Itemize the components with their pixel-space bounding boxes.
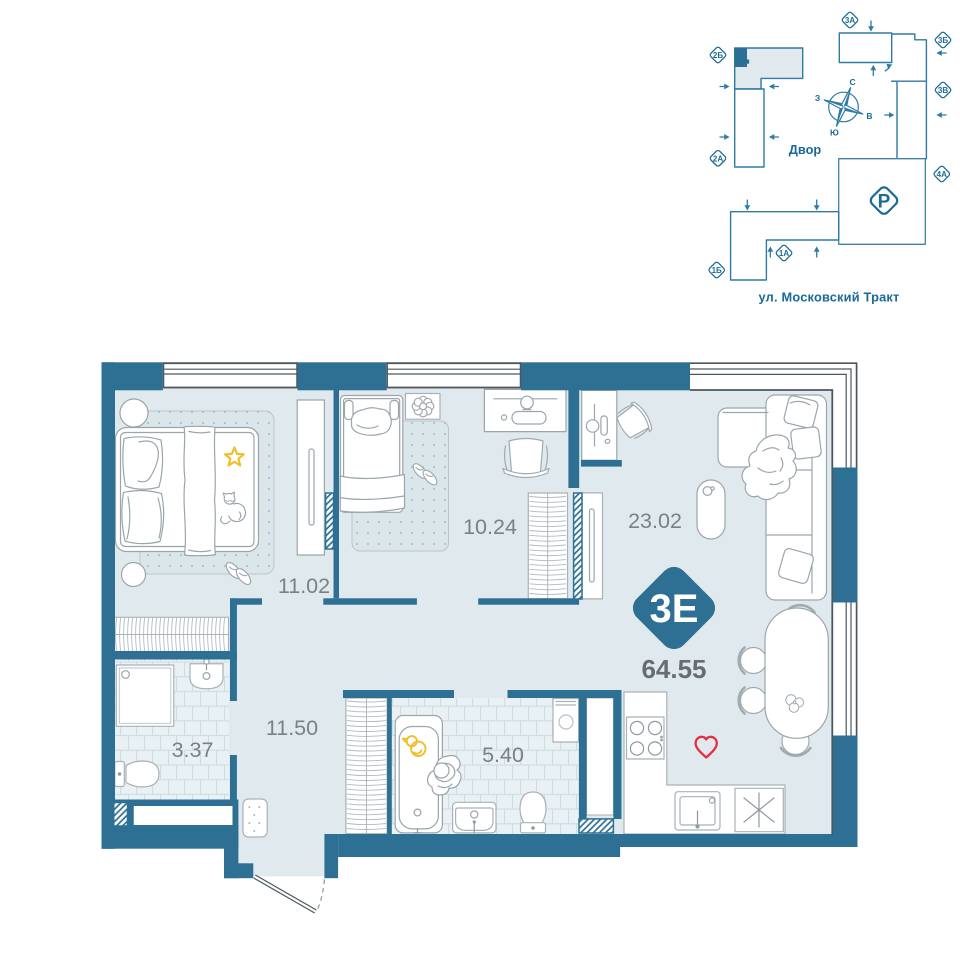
svg-text:Ю: Ю — [830, 128, 839, 138]
svg-text:3.37: 3.37 — [172, 738, 214, 762]
svg-text:З: З — [815, 93, 820, 103]
svg-text:23.02: 23.02 — [628, 509, 682, 533]
svg-text:3Е: 3Е — [650, 587, 699, 631]
svg-text:5.40: 5.40 — [482, 743, 524, 767]
svg-text:11.02: 11.02 — [278, 574, 330, 598]
svg-text:3Б: 3Б — [938, 36, 948, 45]
svg-text:10.24: 10.24 — [463, 515, 517, 539]
svg-text:Двор: Двор — [789, 142, 822, 157]
svg-text:2Б: 2Б — [713, 51, 723, 60]
svg-text:11.50: 11.50 — [266, 716, 318, 740]
svg-text:3В: 3В — [938, 86, 948, 95]
svg-text:1А: 1А — [779, 249, 789, 258]
svg-text:1Б: 1Б — [712, 266, 722, 275]
svg-text:2А: 2А — [713, 154, 723, 163]
svg-text:С: С — [850, 77, 856, 87]
svg-text:В: В — [866, 111, 872, 121]
svg-text:4А: 4А — [937, 170, 947, 179]
svg-text:ул. Московский Тракт: ул. Московский Тракт — [759, 290, 900, 305]
svg-text:P: P — [878, 192, 891, 213]
svg-text:3А: 3А — [845, 16, 855, 25]
svg-text:64.55: 64.55 — [641, 654, 706, 684]
